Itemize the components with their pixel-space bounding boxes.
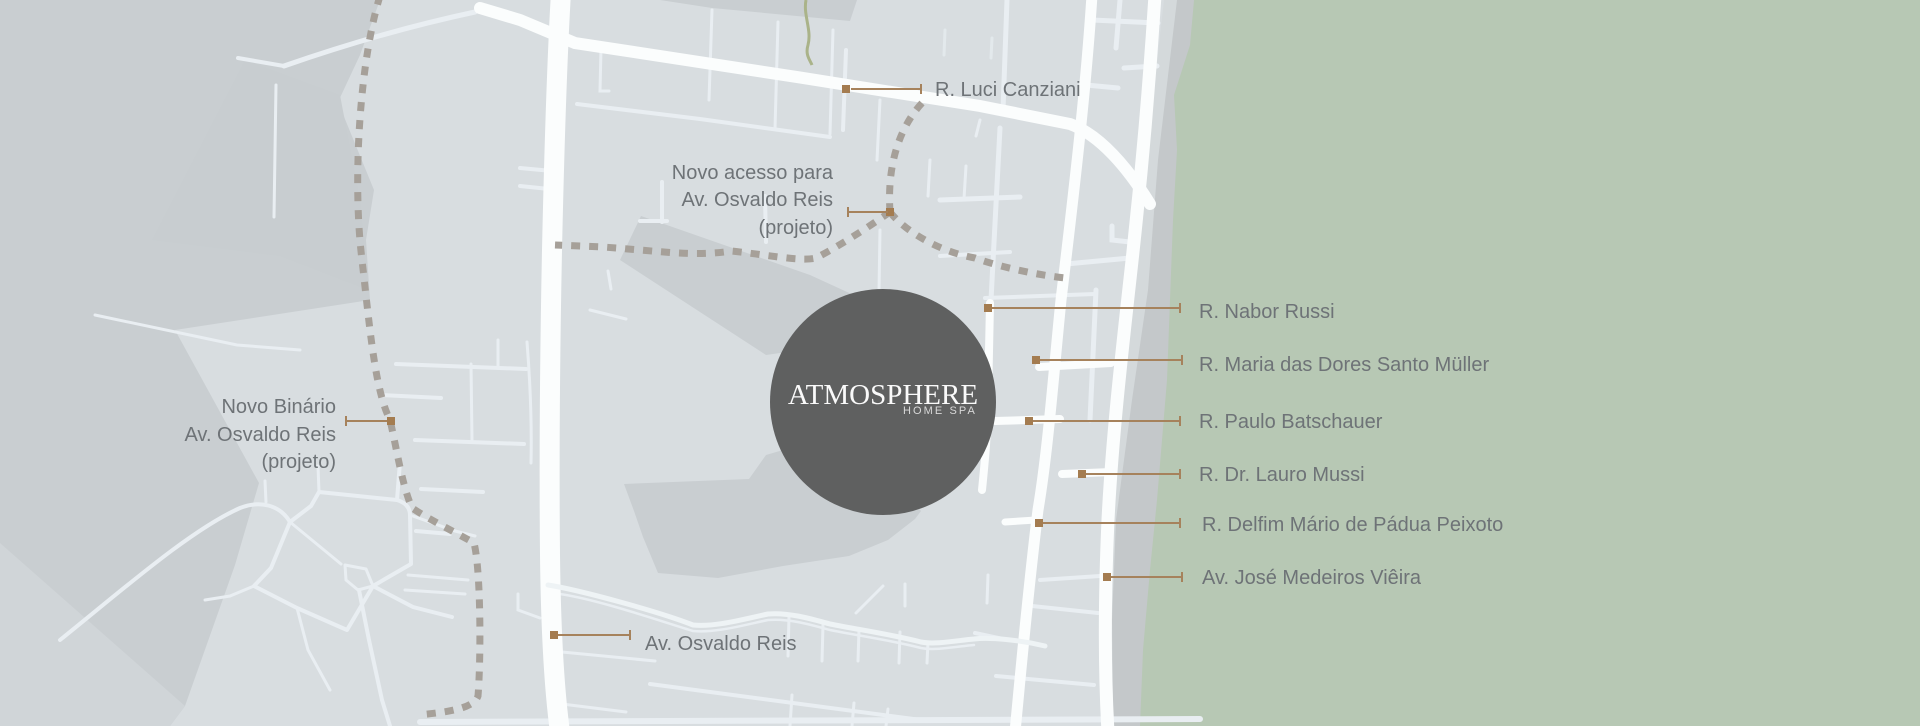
svg-text:R. Delfim Mário de Pádua Peixo: R. Delfim Mário de Pádua Peixoto bbox=[1202, 514, 1503, 536]
svg-text:R. Paulo Batschauer: R. Paulo Batschauer bbox=[1199, 411, 1383, 433]
svg-text:R. Nabor Russi: R. Nabor Russi bbox=[1199, 301, 1335, 323]
svg-text:(projeto): (projeto) bbox=[262, 451, 336, 473]
svg-text:Novo Binário: Novo Binário bbox=[221, 396, 336, 418]
svg-text:HOME SPA: HOME SPA bbox=[903, 405, 977, 417]
svg-text:Av. Osvaldo Reis: Av. Osvaldo Reis bbox=[681, 189, 833, 211]
svg-text:R. Maria das Dores Santo Mülle: R. Maria das Dores Santo Müller bbox=[1199, 354, 1489, 376]
svg-text:Av. Osvaldo Reis: Av. Osvaldo Reis bbox=[184, 424, 336, 446]
svg-text:Av. José Medeiros Viêira: Av. José Medeiros Viêira bbox=[1202, 567, 1422, 589]
svg-text:Av. Osvaldo Reis: Av. Osvaldo Reis bbox=[645, 633, 797, 655]
svg-text:R. Dr. Lauro Mussi: R. Dr. Lauro Mussi bbox=[1199, 464, 1365, 486]
svg-text:R. Luci Canziani: R. Luci Canziani bbox=[935, 79, 1081, 101]
svg-text:(projeto): (projeto) bbox=[759, 217, 833, 239]
svg-text:Novo acesso para: Novo acesso para bbox=[672, 162, 834, 184]
